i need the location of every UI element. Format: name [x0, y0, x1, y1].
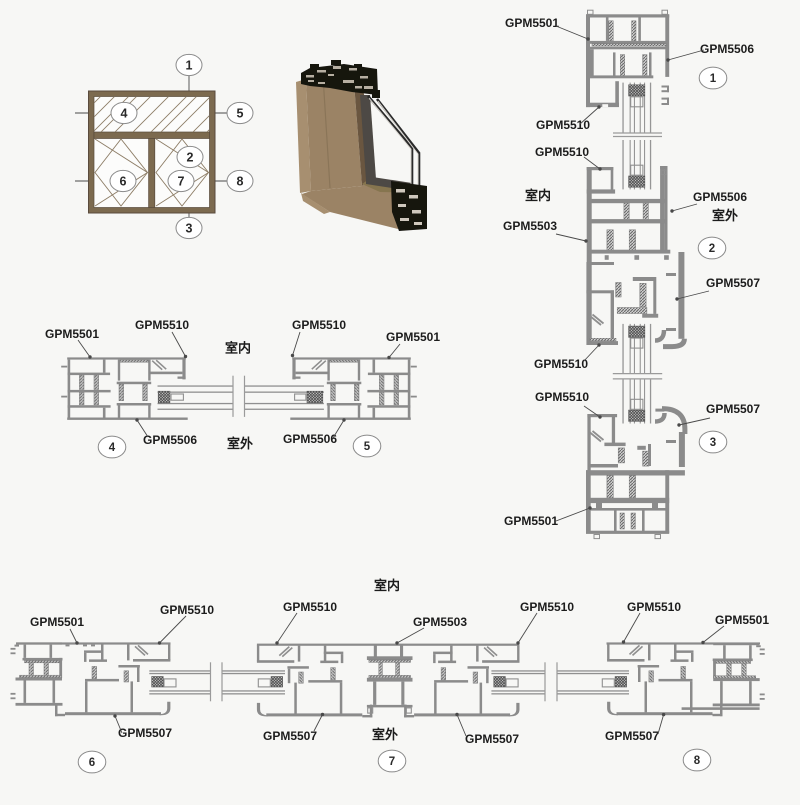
- svg-text:4: 4: [109, 442, 116, 454]
- svg-text:室内: 室内: [225, 341, 251, 356]
- svg-text:GPM5501: GPM5501: [715, 613, 769, 627]
- svg-text:1: 1: [710, 73, 717, 85]
- svg-text:GPM5506: GPM5506: [283, 432, 337, 446]
- svg-text:GPM5501: GPM5501: [505, 16, 559, 30]
- svg-text:5: 5: [237, 107, 244, 121]
- svg-text:6: 6: [120, 175, 127, 189]
- svg-text:1: 1: [186, 59, 193, 73]
- svg-text:GPM5510: GPM5510: [520, 600, 574, 614]
- svg-text:GPM5506: GPM5506: [700, 42, 754, 56]
- svg-text:GPM5510: GPM5510: [535, 390, 589, 404]
- svg-text:GPM5510: GPM5510: [534, 357, 588, 371]
- svg-text:GPM5507: GPM5507: [605, 729, 659, 743]
- svg-text:室外: 室外: [372, 727, 398, 742]
- svg-text:2: 2: [709, 243, 715, 255]
- svg-text:2: 2: [187, 151, 194, 165]
- svg-text:GPM5507: GPM5507: [465, 732, 519, 746]
- svg-text:GPM5501: GPM5501: [504, 514, 558, 528]
- svg-text:GPM5506: GPM5506: [693, 190, 747, 204]
- svg-text:室外: 室外: [227, 436, 253, 451]
- svg-text:GPM5507: GPM5507: [706, 276, 760, 290]
- svg-text:7: 7: [389, 756, 395, 768]
- svg-text:7: 7: [178, 175, 185, 189]
- svg-text:室内: 室内: [525, 188, 551, 203]
- svg-text:8: 8: [237, 175, 244, 189]
- svg-text:GPM5510: GPM5510: [292, 318, 346, 332]
- svg-text:3: 3: [710, 437, 716, 449]
- svg-text:GPM5501: GPM5501: [30, 615, 84, 629]
- svg-text:8: 8: [694, 755, 701, 767]
- svg-text:GPM5507: GPM5507: [118, 726, 172, 740]
- svg-text:GPM5510: GPM5510: [627, 600, 681, 614]
- svg-text:GPM5503: GPM5503: [503, 219, 557, 233]
- svg-text:GPM5510: GPM5510: [135, 318, 189, 332]
- svg-text:GPM5510: GPM5510: [535, 145, 589, 159]
- svg-text:室内: 室内: [374, 578, 400, 593]
- svg-text:4: 4: [121, 107, 128, 121]
- svg-text:6: 6: [89, 757, 95, 769]
- svg-text:GPM5510: GPM5510: [160, 603, 214, 617]
- svg-text:GPM5506: GPM5506: [143, 433, 197, 447]
- svg-text:3: 3: [186, 222, 193, 236]
- svg-text:GPM5501: GPM5501: [45, 327, 99, 341]
- svg-text:GPM5507: GPM5507: [706, 402, 760, 416]
- svg-text:GPM5510: GPM5510: [536, 118, 590, 132]
- svg-text:GPM5501: GPM5501: [386, 330, 440, 344]
- svg-text:GPM5507: GPM5507: [263, 729, 317, 743]
- svg-text:GPM5503: GPM5503: [413, 615, 467, 629]
- svg-text:室外: 室外: [712, 208, 738, 223]
- svg-text:5: 5: [364, 441, 371, 453]
- svg-text:GPM5510: GPM5510: [283, 600, 337, 614]
